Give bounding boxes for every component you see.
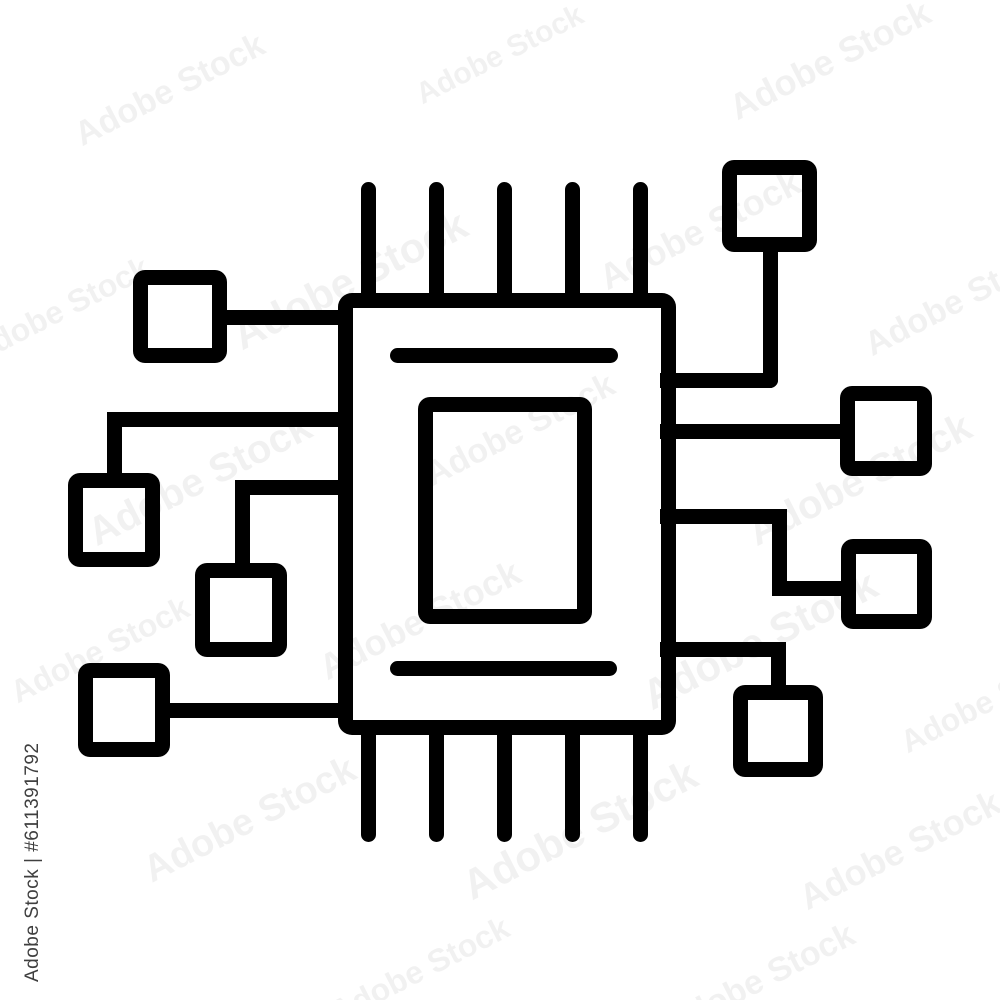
- conn-right-3-h2: [772, 581, 842, 596]
- pin-bottom-3: [497, 720, 512, 842]
- conn-right-2: [660, 424, 840, 439]
- diagonal-watermark-text: Adobe Stock: [324, 909, 515, 1000]
- pin-bottom-5: [633, 720, 648, 842]
- pin-top-3: [497, 182, 512, 308]
- stock-id-watermark-label: Adobe Stock | #611391792: [22, 743, 44, 983]
- pin-bottom-4: [565, 720, 580, 842]
- conn-left-4: [170, 703, 345, 718]
- pin-top-2: [429, 182, 444, 308]
- conn-left-3-v: [235, 480, 250, 564]
- diagonal-watermark-text: Adobe Stock: [411, 0, 590, 112]
- pin-top-1: [361, 182, 376, 308]
- diagonal-watermark-text: Adobe Stock: [722, 0, 937, 129]
- node-mid-right: [840, 386, 932, 476]
- node-bottom-right: [733, 685, 823, 777]
- node-lower-left: [195, 563, 287, 657]
- stock-image-canvas: Adobe StockAdobe StockAdobe StockAdobe S…: [0, 0, 1000, 1000]
- conn-left-2-v: [107, 412, 122, 474]
- conn-right-1-v: [763, 252, 778, 388]
- diagonal-watermark-text: Adobe Stock: [69, 25, 272, 154]
- conn-left-2-h: [107, 412, 353, 427]
- core-line-top: [390, 348, 618, 363]
- chip-core: [418, 397, 592, 624]
- node-lower-right: [841, 539, 932, 629]
- conn-right-4-v: [771, 642, 786, 686]
- conn-left-3-h: [235, 480, 353, 495]
- pin-bottom-2: [429, 720, 444, 842]
- diagonal-watermark-text: Adobe Stock: [455, 750, 706, 909]
- pin-bottom-1: [361, 720, 376, 842]
- conn-left-1: [219, 310, 345, 325]
- diagonal-watermark-text: Adobe Stock: [137, 748, 363, 892]
- node-bottom-left: [78, 663, 170, 757]
- core-line-bottom: [390, 661, 617, 676]
- conn-right-4-h: [660, 642, 786, 657]
- diagonal-watermark-text: Adobe Stock: [792, 781, 1000, 918]
- node-mid-left: [68, 473, 160, 567]
- diagonal-watermark-text: Adobe Stock: [859, 235, 1000, 364]
- diagonal-watermark-text: Adobe Stock: [894, 639, 1000, 761]
- diagonal-watermark-text: Adobe Stock: [659, 915, 862, 1000]
- node-top-left: [133, 270, 227, 363]
- pin-top-5: [633, 182, 648, 308]
- node-top-right: [722, 160, 817, 252]
- pin-top-4: [565, 182, 580, 308]
- conn-right-3-h1: [660, 509, 787, 524]
- conn-right-1-h: [660, 373, 778, 388]
